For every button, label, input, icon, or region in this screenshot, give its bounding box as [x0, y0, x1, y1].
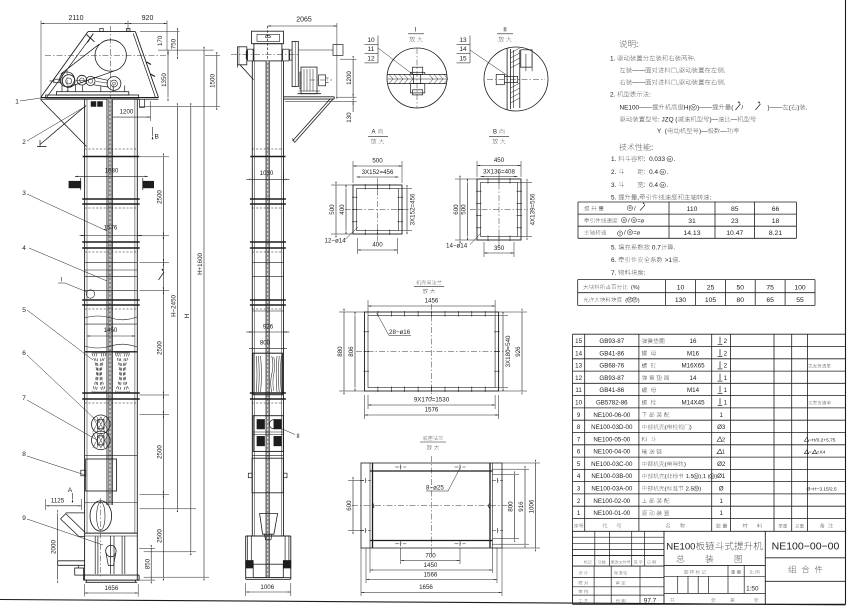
svg-text:2.5: 2.5 — [686, 487, 694, 493]
svg-text:NE100: NE100 — [666, 542, 695, 553]
svg-text:=: = — [809, 451, 812, 456]
svg-text:Y: Y — [657, 128, 662, 135]
svg-text:10: 10 — [575, 400, 582, 407]
svg-text:10: 10 — [367, 37, 375, 44]
svg-text:M: M — [661, 183, 664, 187]
svg-text:8: 8 — [22, 451, 26, 458]
svg-text:1200: 1200 — [120, 109, 134, 116]
svg-text:31: 31 — [688, 218, 696, 225]
svg-text:B: B — [493, 130, 497, 136]
svg-text:66: 66 — [772, 206, 780, 213]
svg-text::: : — [644, 182, 646, 189]
svg-text::: : — [644, 270, 646, 277]
svg-text:600: 600 — [346, 500, 353, 511]
svg-text:130: 130 — [675, 297, 687, 304]
svg-text:450: 450 — [494, 157, 505, 164]
svg-text:GB41-86: GB41-86 — [599, 350, 624, 357]
svg-text:800: 800 — [508, 501, 515, 512]
svg-text:NE100-02-00: NE100-02-00 — [593, 498, 630, 505]
svg-text:926: 926 — [515, 346, 522, 357]
svg-text:500: 500 — [372, 158, 383, 165]
svg-text:—: — — [731, 117, 738, 124]
svg-text:): ) — [690, 425, 692, 431]
svg-text:2: 2 — [724, 363, 728, 370]
svg-text:1: 1 — [724, 400, 728, 407]
svg-text:2.: 2. — [611, 169, 617, 176]
svg-text:2.: 2. — [610, 92, 616, 99]
svg-text:3.: 3. — [611, 182, 617, 189]
svg-text:5: 5 — [22, 307, 26, 314]
svg-text:.: . — [667, 169, 669, 176]
svg-text:1030: 1030 — [260, 170, 274, 177]
svg-text:H−2450: H−2450 — [170, 294, 177, 316]
svg-text:1450: 1450 — [424, 562, 438, 569]
svg-text:M: M — [633, 218, 636, 222]
svg-text:9X170=1530: 9X170=1530 — [414, 397, 450, 404]
svg-text:GB93-87: GB93-87 — [599, 338, 624, 345]
svg-text:23: 23 — [731, 218, 739, 225]
svg-text:5.: 5. — [611, 195, 617, 202]
svg-text:GB93-87: GB93-87 — [599, 375, 624, 382]
svg-text:3X136=408: 3X136=408 — [483, 168, 515, 175]
svg-text:M: M — [661, 170, 664, 174]
svg-text::: : — [651, 143, 653, 152]
svg-text:1: 1 — [722, 450, 725, 456]
svg-text:II: II — [296, 434, 300, 440]
svg-text:(: ( — [665, 425, 667, 431]
svg-text:.: . — [694, 56, 696, 63]
svg-text:B: B — [155, 134, 159, 141]
svg-text:1006: 1006 — [260, 584, 274, 591]
svg-text:2: 2 — [722, 437, 725, 443]
svg-text:1.5: 1.5 — [686, 474, 694, 480]
svg-text:13: 13 — [575, 363, 582, 370]
svg-text:3X152=456: 3X152=456 — [410, 193, 417, 225]
svg-text:12: 12 — [575, 375, 582, 382]
svg-text:2000: 2000 — [51, 540, 58, 554]
svg-text:M: M — [668, 157, 671, 161]
svg-text:11: 11 — [368, 46, 375, 53]
svg-text::: : — [710, 195, 712, 202]
svg-text:GB68-76: GB68-76 — [599, 363, 624, 370]
svg-text:880: 880 — [337, 346, 344, 357]
svg-text:1: 1 — [719, 498, 723, 505]
svg-text:(%): (%) — [631, 285, 640, 291]
svg-text:1006: 1006 — [529, 499, 536, 513]
svg-text:Ø=H−3.15/2.5: Ø=H−3.15/2.5 — [807, 487, 838, 493]
svg-text::: : — [644, 156, 646, 163]
svg-text:II: II — [503, 27, 507, 34]
svg-text:400: 400 — [339, 204, 346, 215]
svg-text:.: . — [674, 245, 676, 252]
svg-text:1.: 1. — [610, 56, 616, 63]
svg-text:M: M — [633, 298, 636, 302]
svg-text:920: 920 — [142, 15, 154, 22]
svg-text:28−ø16: 28−ø16 — [389, 329, 411, 336]
svg-text:130: 130 — [346, 112, 353, 123]
svg-text:400: 400 — [372, 242, 383, 249]
svg-text:NE100-01-00: NE100-01-00 — [593, 510, 630, 517]
svg-text:(: ( — [708, 474, 710, 480]
svg-text:JZQ: JZQ — [662, 117, 674, 124]
svg-text:16: 16 — [690, 338, 697, 345]
svg-text:.: . — [724, 80, 726, 87]
svg-text:12−ø14: 12−ø14 — [325, 238, 347, 245]
svg-text:NE100-03D-00: NE100-03D-00 — [591, 424, 633, 431]
svg-text:50: 50 — [737, 284, 745, 291]
svg-text:8.21: 8.21 — [769, 230, 782, 237]
svg-text:100: 100 — [794, 284, 806, 291]
svg-text:0.033: 0.033 — [649, 156, 665, 163]
svg-text:,: , — [677, 68, 679, 75]
svg-text:75: 75 — [766, 284, 774, 291]
svg-text:170: 170 — [157, 35, 164, 46]
svg-text:750: 750 — [171, 38, 178, 49]
svg-text::: : — [649, 92, 651, 99]
svg-text:(: ( — [665, 487, 667, 493]
svg-text:1200: 1200 — [346, 71, 353, 85]
svg-text:110: 110 — [687, 206, 698, 213]
svg-text:/: / — [741, 105, 743, 112]
svg-text:15: 15 — [459, 55, 467, 62]
svg-text:): ) — [684, 462, 686, 468]
svg-text:): ) — [797, 105, 799, 112]
svg-text:): ) — [699, 487, 701, 493]
svg-text:14: 14 — [690, 375, 697, 382]
svg-text:850: 850 — [144, 558, 151, 569]
svg-text:7: 7 — [22, 395, 26, 402]
svg-text:O: O — [619, 232, 622, 236]
svg-text:15: 15 — [575, 338, 582, 345]
svg-text:M: M — [711, 474, 714, 478]
svg-text:5.: 5. — [611, 245, 617, 252]
svg-text:NE100-03B-00: NE100-03B-00 — [591, 473, 632, 480]
svg-text:2: 2 — [577, 498, 581, 505]
svg-text:,: , — [677, 80, 679, 87]
svg-text:7.: 7. — [611, 270, 617, 277]
svg-text:Ø: Ø — [719, 486, 724, 493]
svg-text:8: 8 — [577, 424, 581, 431]
svg-text:1656: 1656 — [105, 585, 119, 592]
svg-text:M: M — [695, 474, 698, 478]
svg-text:0.7: 0.7 — [652, 245, 661, 252]
svg-text:GB41-86: GB41-86 — [599, 387, 624, 394]
svg-text:2500: 2500 — [157, 190, 164, 204]
svg-text:)——: )—— — [767, 105, 783, 112]
svg-text:X4: X4 — [820, 450, 826, 456]
svg-text:I: I — [415, 27, 417, 34]
svg-text:10: 10 — [677, 284, 685, 291]
svg-text:6.: 6. — [611, 257, 617, 264]
svg-text:=ø: =ø — [634, 231, 641, 237]
svg-text:2: 2 — [724, 338, 728, 345]
svg-text:1656: 1656 — [419, 584, 433, 591]
svg-text:2500: 2500 — [157, 529, 164, 543]
svg-text:65: 65 — [766, 297, 774, 304]
svg-text:H: H — [184, 314, 191, 318]
svg-text:9: 9 — [22, 515, 26, 522]
svg-text:4X139=556: 4X139=556 — [530, 193, 537, 225]
svg-text:)——: )—— — [697, 105, 713, 112]
svg-text:GB5782-86: GB5782-86 — [596, 400, 628, 407]
svg-text:M: M — [629, 206, 632, 210]
svg-text:2065: 2065 — [296, 17, 312, 24]
svg-text:80: 80 — [737, 297, 745, 304]
svg-text:800: 800 — [260, 340, 271, 347]
svg-text:2: 2 — [724, 350, 728, 357]
svg-text:——: —— — [632, 80, 645, 87]
svg-text:10.47: 10.47 — [726, 230, 743, 237]
svg-text:700: 700 — [425, 553, 436, 560]
svg-text:.: . — [667, 182, 669, 189]
svg-text:.: . — [724, 68, 726, 75]
svg-text:11: 11 — [575, 387, 582, 394]
svg-text:M16: M16 — [687, 350, 700, 357]
svg-text:A: A — [68, 487, 73, 494]
svg-text:6: 6 — [22, 350, 26, 357]
svg-text:—: — — [720, 128, 727, 135]
svg-text:1: 1 — [719, 412, 723, 419]
svg-text:(: ( — [665, 462, 667, 468]
svg-text:NE100-04-00: NE100-04-00 — [593, 449, 630, 456]
svg-text:1: 1 — [724, 375, 728, 382]
svg-text:M14X45: M14X45 — [681, 400, 705, 407]
svg-text::: : — [644, 169, 646, 176]
svg-text:1: 1 — [15, 99, 19, 106]
svg-text:NE100-03C-00: NE100-03C-00 — [591, 461, 633, 468]
svg-text:NE100-06-00: NE100-06-00 — [593, 412, 630, 419]
svg-text:1350: 1350 — [161, 73, 168, 87]
svg-text:.: . — [674, 156, 676, 163]
svg-text:2500: 2500 — [157, 445, 164, 459]
svg-text:1456: 1456 — [425, 298, 439, 305]
svg-text:4: 4 — [22, 245, 26, 252]
svg-text:1.: 1. — [611, 156, 617, 163]
svg-text:500: 500 — [461, 204, 468, 215]
svg-text:500: 500 — [329, 204, 336, 215]
svg-text:97.7: 97.7 — [644, 598, 657, 605]
svg-text:): ) — [638, 298, 640, 304]
svg-text:1: 1 — [719, 510, 723, 517]
svg-text:)—: )— — [699, 128, 708, 135]
svg-text:916: 916 — [518, 501, 525, 512]
svg-text:14.13: 14.13 — [683, 230, 700, 237]
svg-text:1:50: 1:50 — [746, 586, 759, 593]
svg-text:1680: 1680 — [105, 168, 119, 175]
svg-text:=ø: =ø — [638, 219, 645, 225]
svg-text:6: 6 — [577, 449, 581, 456]
svg-text:)—: )— — [710, 117, 719, 124]
svg-text:>1: >1 — [665, 257, 673, 264]
svg-text:2110: 2110 — [68, 15, 83, 22]
svg-text:600: 600 — [453, 204, 460, 215]
svg-text:0.4: 0.4 — [649, 169, 658, 176]
svg-text:85: 85 — [731, 206, 739, 213]
svg-text:1450: 1450 — [104, 327, 118, 334]
svg-text:),1: ),1 — [699, 474, 706, 480]
svg-text:1576: 1576 — [425, 407, 439, 414]
svg-text:14−ø14: 14−ø14 — [446, 243, 468, 250]
svg-text:M: M — [692, 106, 695, 110]
svg-text:(: ( — [665, 474, 667, 480]
svg-text:3X152=456: 3X152=456 — [362, 169, 394, 176]
svg-text:14: 14 — [575, 350, 582, 357]
svg-text:350: 350 — [494, 245, 505, 252]
svg-text:H(: H( — [684, 105, 692, 112]
svg-text:.: . — [678, 257, 680, 264]
svg-text:3: 3 — [22, 190, 26, 197]
svg-text:5: 5 — [577, 461, 581, 468]
svg-text:(: ( — [625, 298, 627, 304]
svg-text:=H/0.2+5.75: =H/0.2+5.75 — [809, 437, 836, 443]
svg-text:1125: 1125 — [51, 498, 65, 505]
svg-text::: : — [658, 117, 660, 124]
svg-text:18: 18 — [772, 218, 780, 225]
svg-text:M16X65: M16X65 — [681, 363, 705, 370]
svg-text:NE100-03A-00: NE100-03A-00 — [591, 486, 632, 493]
svg-text:M: M — [695, 487, 698, 491]
svg-text:1: 1 — [724, 387, 728, 394]
svg-text:14: 14 — [459, 46, 467, 53]
svg-text:.: . — [806, 105, 808, 112]
svg-text:H+1600: H+1600 — [197, 252, 204, 274]
svg-text:0.4: 0.4 — [649, 182, 658, 189]
svg-text:Ø3: Ø3 — [717, 424, 726, 431]
svg-text:4: 4 — [577, 473, 581, 480]
svg-text:Ø2: Ø2 — [717, 461, 726, 468]
svg-text:M: M — [629, 231, 632, 235]
svg-text:3X180=540: 3X180=540 — [505, 335, 512, 367]
svg-text:25: 25 — [707, 284, 715, 291]
svg-text:1500: 1500 — [210, 74, 217, 88]
svg-text::: : — [636, 39, 638, 49]
svg-text:NE100−00−00: NE100−00−00 — [772, 541, 840, 553]
svg-text:1: 1 — [577, 510, 581, 517]
svg-text:NE100——: NE100—— — [620, 105, 653, 112]
svg-text:M: M — [628, 298, 631, 302]
svg-text:NE100-05-00: NE100-05-00 — [593, 436, 630, 443]
svg-text:13: 13 — [459, 37, 467, 44]
svg-text:8−ø25: 8−ø25 — [426, 485, 444, 492]
svg-text:55: 55 — [796, 297, 804, 304]
svg-text:926: 926 — [263, 323, 274, 330]
svg-text:9: 9 — [577, 412, 581, 419]
svg-text:——: —— — [632, 68, 645, 75]
svg-text:806: 806 — [348, 346, 355, 357]
svg-text:Ø1: Ø1 — [717, 473, 726, 480]
svg-text:12: 12 — [367, 55, 375, 62]
svg-text:7: 7 — [577, 436, 581, 443]
svg-text:2500: 2500 — [157, 341, 164, 355]
svg-text:M14: M14 — [687, 387, 700, 394]
svg-text:,: , — [637, 195, 639, 202]
svg-text:3: 3 — [577, 486, 581, 493]
svg-text:1566: 1566 — [424, 572, 438, 579]
svg-text:M: M — [623, 218, 626, 222]
svg-text:2: 2 — [22, 139, 26, 146]
svg-text:A: A — [372, 130, 376, 136]
svg-text:105: 105 — [705, 297, 717, 304]
